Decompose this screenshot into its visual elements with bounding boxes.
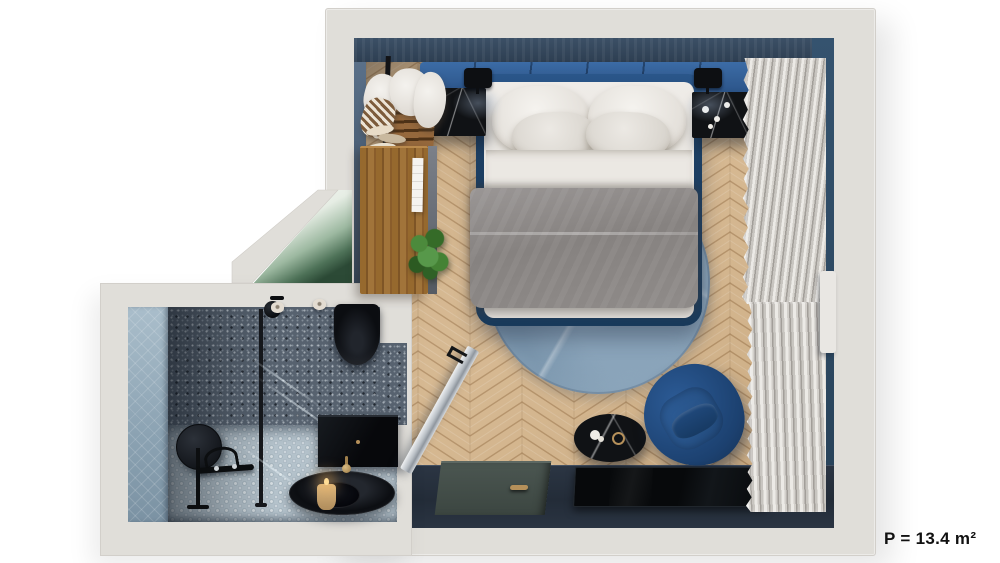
paper-towels: [412, 158, 424, 212]
flower: [708, 124, 713, 129]
toilet-paper-roll: [271, 302, 284, 313]
toilet: [334, 304, 380, 365]
blue-armchair: [637, 358, 750, 473]
flower: [724, 102, 730, 108]
candle: [317, 484, 336, 510]
wall-sconce-left: [464, 68, 492, 88]
vanity-knob: [356, 440, 360, 444]
wall-tv: [573, 467, 769, 507]
gold-faucet: [342, 464, 351, 473]
shower-arm: [270, 296, 284, 300]
area-label: P = 13.4 m²: [884, 529, 996, 549]
flower: [702, 106, 709, 113]
black-basin: [289, 471, 395, 515]
door-handle: [510, 485, 529, 490]
towel-clip: [214, 466, 219, 471]
wall-sconce-right: [694, 68, 722, 88]
mirror-stand-base: [187, 505, 209, 509]
entry-door: [435, 461, 552, 515]
gold-tray: [612, 432, 625, 445]
table-flower: [590, 430, 600, 440]
curtain-panel-top: [742, 58, 826, 304]
black-marble-side-table: [574, 414, 646, 462]
toilet-paper-roll: [313, 299, 326, 310]
curtain-holdback: [820, 271, 836, 353]
potted-plant: [406, 228, 450, 280]
flower: [714, 116, 720, 122]
floor-plan: P = 13.4 m²: [0, 0, 1000, 563]
double-bed: [476, 74, 702, 326]
gray-duvet: [470, 188, 698, 308]
angled-glass-wall: [225, 182, 355, 288]
bathroom-west-wall-tiles: [128, 307, 168, 522]
shower-glass-foot: [255, 503, 267, 507]
bathroom-terrazzo-wall-east: [380, 343, 407, 425]
shower-glass-frame: [259, 309, 263, 507]
towel-clip: [232, 464, 237, 469]
mirror-stand-pole: [196, 448, 200, 508]
curtain-panel-bottom: [746, 302, 826, 512]
nightstand-right: [692, 92, 750, 138]
